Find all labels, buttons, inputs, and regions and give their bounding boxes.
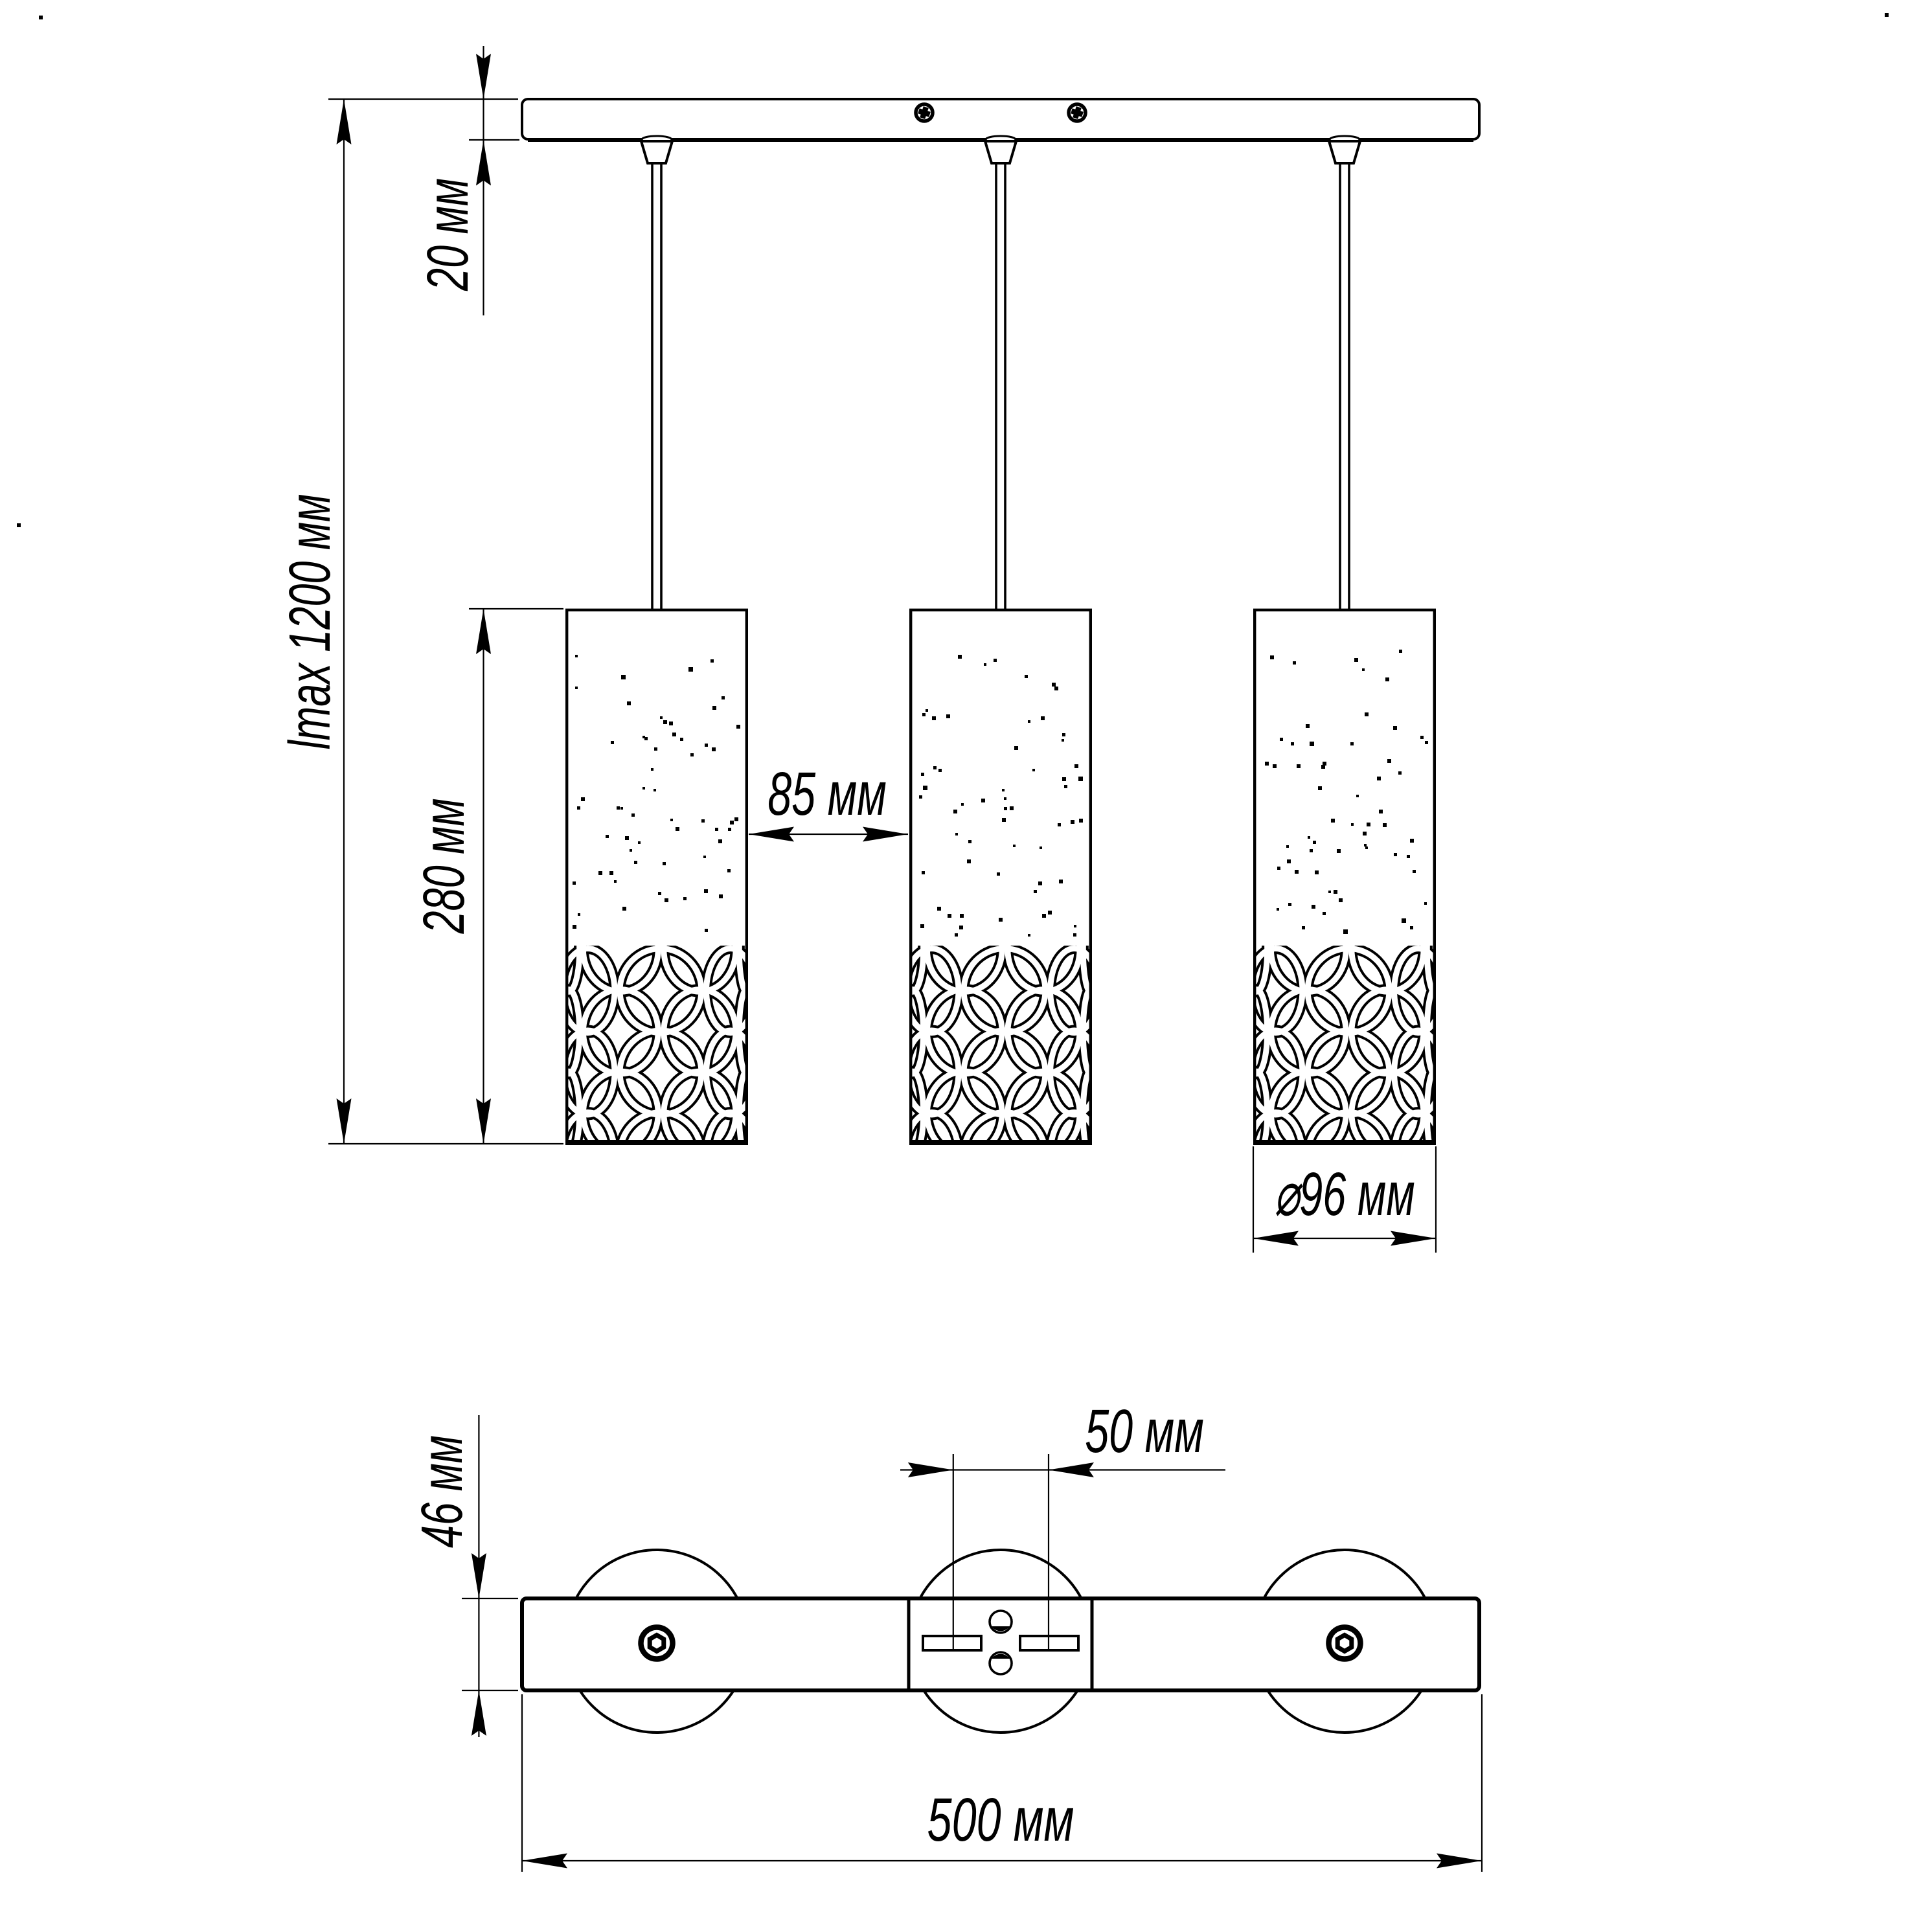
svg-text:500 мм: 500 мм xyxy=(927,1785,1074,1854)
svg-text:85 мм: 85 мм xyxy=(767,760,887,828)
svg-text:lmax 1200 мм: lmax 1200 мм xyxy=(278,494,343,749)
svg-text:46 мм: 46 мм xyxy=(410,1435,475,1548)
svg-text:⌀96 мм: ⌀96 мм xyxy=(1274,1160,1415,1229)
svg-text:50 мм: 50 мм xyxy=(1085,1397,1204,1465)
svg-text:20 мм: 20 мм xyxy=(416,178,481,291)
svg-text:280 мм: 280 мм xyxy=(412,799,477,935)
